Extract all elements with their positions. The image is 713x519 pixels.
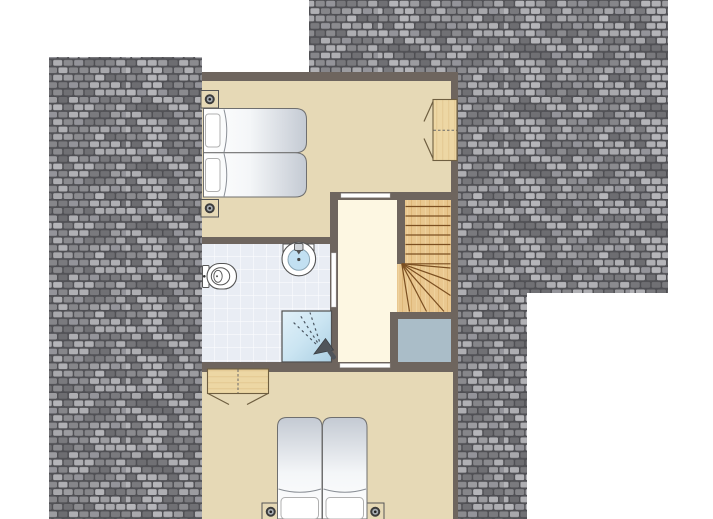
shower <box>282 311 337 362</box>
door-opening-top <box>341 194 390 198</box>
toilet <box>203 264 237 290</box>
washbasin <box>282 242 316 276</box>
door-opening-bathroom <box>332 253 337 307</box>
pillow <box>281 498 319 519</box>
pillow <box>326 498 364 519</box>
spotlight-1 <box>201 91 219 109</box>
floor-plan-canvas <box>0 0 713 519</box>
door-opening-bottom <box>340 364 390 368</box>
spotlight-4 <box>367 503 385 519</box>
stairwell-void <box>398 319 451 362</box>
pillow <box>206 159 221 192</box>
staircase <box>397 200 451 312</box>
room-landing <box>338 200 397 362</box>
pillow <box>206 114 221 147</box>
roof-left <box>49 57 202 519</box>
faucet <box>295 244 304 251</box>
spotlight-2 <box>201 200 219 218</box>
twin-beds <box>204 109 307 198</box>
spotlight-3 <box>262 503 280 519</box>
double-bed <box>278 418 368 519</box>
floor-plan-svg <box>0 0 713 519</box>
